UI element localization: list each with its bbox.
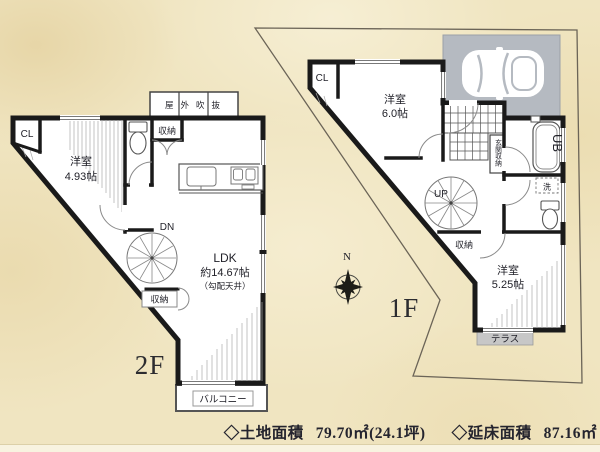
toilet-icon-2f (129, 122, 147, 154)
floor1-label: 1F (389, 293, 420, 323)
total-floor-area-label: ◇延床面積 (452, 425, 532, 442)
bedroom-south-name: 洋室 (497, 263, 519, 277)
ldk-name: LDK (213, 251, 236, 265)
laundry-label: 洗 (543, 182, 551, 192)
unit-bath-label: UB (550, 134, 565, 152)
floor2-plan: CL 洋室 4.93帖 収納 屋外吹抜 DN LDK 約14.67帖 （勾配天井… (13, 92, 267, 411)
land-area-value: 79.70㎡(24.1坪) (316, 425, 426, 442)
floor-plan-canvas: CL 洋室 4.93帖 収納 屋外吹抜 DN LDK 約14.67帖 （勾配天井… (0, 0, 600, 452)
closet-label-1f: CL (316, 73, 329, 84)
bedroom-north-name: 洋室 (384, 92, 406, 106)
spiral-stair-down (127, 233, 177, 283)
car-icon (462, 47, 544, 100)
closet-label-2f: CL (21, 129, 34, 140)
land-area-label: ◇土地面積 (224, 425, 304, 442)
compass-north-label: N (343, 251, 351, 263)
terrace-label: テラス (491, 334, 519, 345)
storage-mid-label: 収納 (150, 294, 168, 305)
kitchen-counter (179, 164, 263, 193)
total-floor-area-text: ◇延床面積87.16㎡ (452, 421, 597, 443)
land-area-text: ◇土地面積79.70㎡(24.1坪) (224, 421, 426, 443)
stairs-up-label: UP (434, 189, 448, 200)
floor2-label: 2F (135, 350, 166, 380)
outdoor-void-label: 屋外吹抜 (165, 100, 227, 110)
balcony-label: バルコニー (199, 395, 246, 406)
compass-icon: N (333, 251, 363, 305)
kitchen-sink-icon (187, 167, 216, 186)
spiral-stair-up (425, 177, 477, 229)
storage-top-label: 収納 (158, 125, 176, 136)
bedroom-2f-size: 4.93帖 (65, 170, 97, 183)
total-floor-area-value: 87.16㎡ (544, 425, 597, 442)
ldk-note: （勾配天井） (199, 281, 250, 291)
storage-1f-label: 収納 (455, 239, 473, 250)
stairs-down-label: DN (160, 222, 174, 233)
toilet-icon-1f (541, 201, 559, 229)
bedroom-2f-name: 洋室 (70, 154, 92, 168)
footer-areas: ◇土地面積79.70㎡(24.1坪) ◇延床面積87.16㎡ (224, 421, 597, 443)
bedroom-south-size: 5.25帖 (492, 278, 524, 291)
bottom-strip (0, 444, 600, 452)
ldk-size: 約14.67帖 (200, 265, 250, 279)
floor-plan-drawing: CL 洋室 4.93帖 収納 屋外吹抜 DN LDK 約14.67帖 （勾配天井… (0, 0, 600, 452)
bedroom-north-size: 6.0帖 (382, 107, 408, 120)
